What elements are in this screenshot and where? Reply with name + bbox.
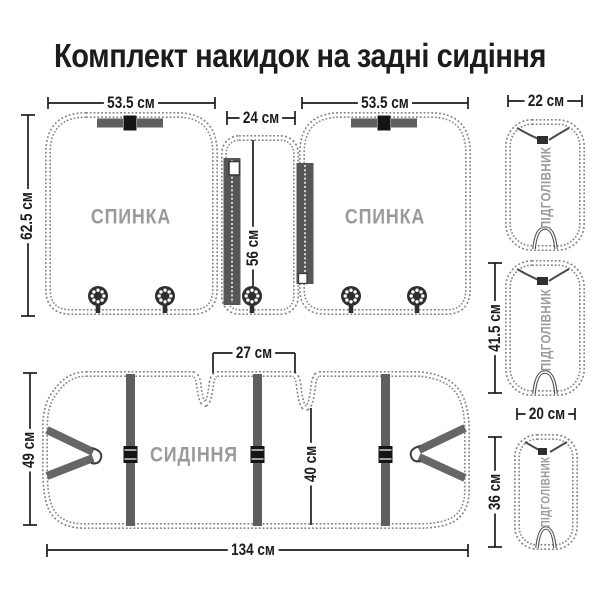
dim-seat-mid-height: 40 см	[302, 443, 320, 486]
dim-center-panel-height: 56 см	[244, 227, 262, 270]
tie-buckle-icon	[537, 277, 548, 285]
dim-center-panel-width: 24 см	[240, 109, 283, 127]
dim-seat-total-width: 134 см	[228, 541, 278, 559]
buckle-icon	[378, 116, 391, 131]
seat-label: СИДІННЯ	[150, 445, 238, 466]
buckle-icon	[251, 446, 265, 463]
zipper-left	[224, 158, 241, 305]
seat-cover-diagram	[0, 0, 600, 600]
backrest-right-label: СПИНКА	[345, 207, 425, 228]
dim-seat-side-height: 49 см	[20, 429, 38, 472]
dim-headrest-small-height: 36 см	[486, 471, 504, 514]
buckle-icon	[379, 446, 393, 463]
zipper-right	[297, 163, 314, 284]
tie-buckle-icon	[538, 448, 547, 455]
dim-seat-gap-width: 27 см	[233, 344, 276, 362]
zipper-pull-icon	[299, 274, 308, 284]
backrest-left-label: СПИНКА	[91, 207, 171, 228]
headrest-bottom-label: ПІДГОЛІВНИК	[541, 457, 553, 528]
headrest-top-label: ПІДГОЛІВНИК	[539, 147, 553, 229]
tie-buckle-icon	[537, 136, 548, 144]
dim-backrest-left-width: 53.5 см	[104, 94, 158, 112]
dim-headrest-top-width: 22 см	[525, 92, 568, 110]
dim-headrest-mid-height: 41.5 см	[486, 301, 504, 355]
dim-backrest-height: 62.5 см	[18, 189, 36, 243]
zipper-pull-icon	[229, 162, 240, 176]
dim-headrest-small-width: 20 см	[526, 405, 569, 423]
buckle-icon	[124, 446, 138, 463]
dim-backrest-right-width: 53.5 см	[358, 94, 412, 112]
headrest-middle-label: ПІДГОЛІВНИК	[539, 289, 553, 371]
diagram-canvas: Комплект накидок на задні сидіння	[0, 0, 600, 600]
buckle-icon	[124, 116, 137, 131]
